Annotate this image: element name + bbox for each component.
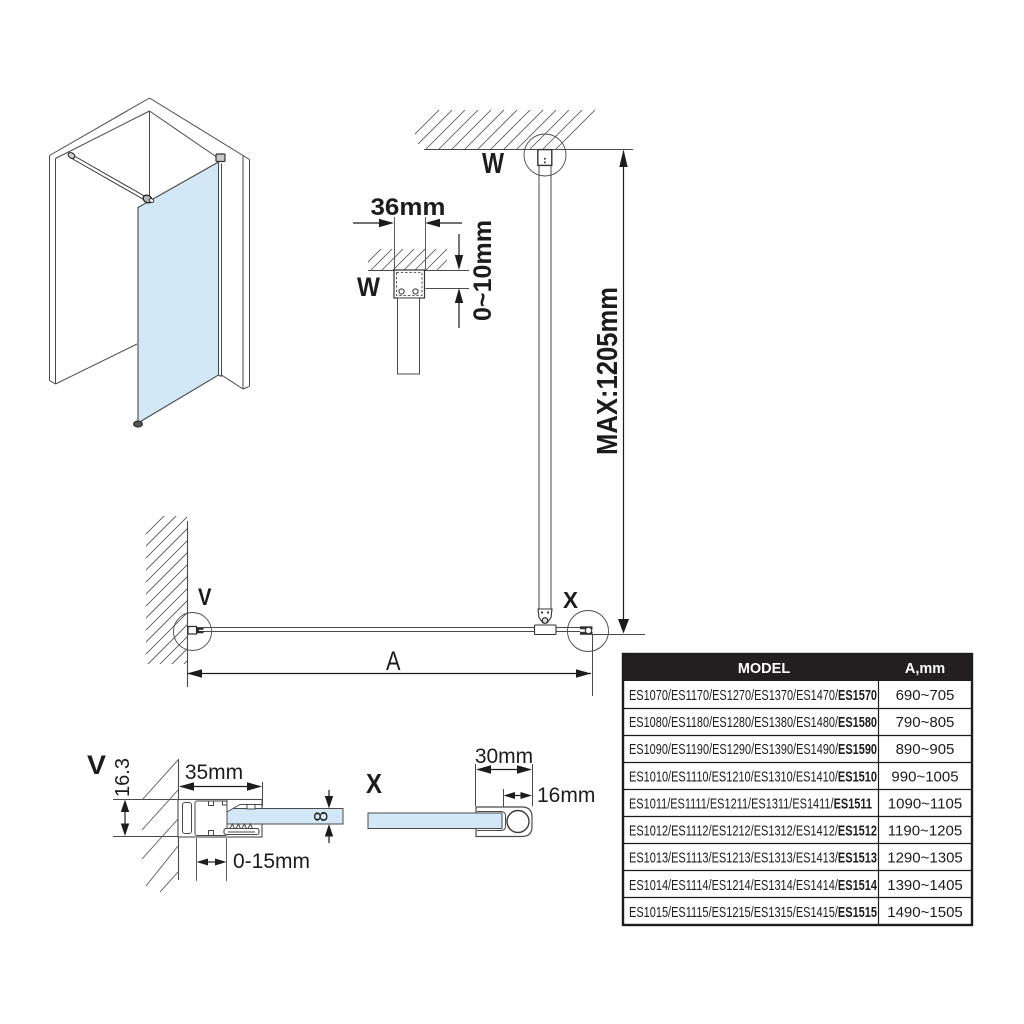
svg-text:V: V <box>198 584 212 611</box>
svg-text:1290~1305: 1290~1305 <box>887 850 963 867</box>
svg-text:1190~1205: 1190~1205 <box>888 823 962 840</box>
svg-text:790~805: 790~805 <box>896 714 955 731</box>
svg-text:ES1015/ES1115/ES1215/ES1315/ES: ES1015/ES1115/ES1215/ES1315/ES1415/ES151… <box>629 904 877 921</box>
svg-text:ES1014/ES1114/ES1214/ES1314/ES: ES1014/ES1114/ES1214/ES1314/ES1414/ES151… <box>629 877 877 894</box>
svg-text:1390~1405: 1390~1405 <box>887 877 963 894</box>
svg-text:ES1010/ES1110/ES1210/ES1310/ES: ES1010/ES1110/ES1210/ES1310/ES1410/ES151… <box>629 768 877 785</box>
svg-text:ES1013/ES1113/ES1213/ES1313/ES: ES1013/ES1113/ES1213/ES1313/ES1413/ES151… <box>629 850 877 867</box>
svg-text:1090~1105: 1090~1105 <box>888 795 962 812</box>
svg-text:0~10mm: 0~10mm <box>469 220 497 321</box>
svg-text:0-15mm: 0-15mm <box>233 850 310 873</box>
svg-text:ES1011/ES1111/ES1211/ES1311/ES: ES1011/ES1111/ES1211/ES1311/ES1411/ES151… <box>629 795 872 812</box>
svg-text:35mm: 35mm <box>185 761 243 784</box>
svg-text:ES1090/ES1190/ES1290/ES1390/ES: ES1090/ES1190/ES1290/ES1390/ES1490/ES159… <box>629 741 877 758</box>
svg-text:MODEL: MODEL <box>738 661 791 677</box>
svg-text:30mm: 30mm <box>475 745 533 768</box>
svg-text:W: W <box>357 272 380 302</box>
svg-text:MAX:1205mm: MAX:1205mm <box>592 287 624 455</box>
svg-text:16mm: 16mm <box>537 784 595 807</box>
svg-text:890~905: 890~905 <box>896 741 955 758</box>
svg-text:36mm: 36mm <box>371 194 446 221</box>
svg-text:1490~1505: 1490~1505 <box>887 904 963 921</box>
svg-text:16.3: 16.3 <box>112 758 134 797</box>
svg-text:X: X <box>563 587 579 613</box>
svg-text:V: V <box>87 750 106 780</box>
svg-text:8: 8 <box>312 811 333 822</box>
svg-text:ES1080/ES1180/ES1280/ES1380/ES: ES1080/ES1180/ES1280/ES1380/ES1480/ES158… <box>629 714 877 731</box>
svg-text:990~1005: 990~1005 <box>891 768 958 785</box>
svg-text:X: X <box>366 768 382 799</box>
svg-text:A: A <box>386 646 401 676</box>
svg-text:ES1070/ES1170/ES1270/ES1370/ES: ES1070/ES1170/ES1270/ES1370/ES1470/ES157… <box>629 687 877 704</box>
svg-text:A,mm: A,mm <box>905 661 945 677</box>
svg-text:690~705: 690~705 <box>896 687 955 704</box>
svg-text:W: W <box>482 148 505 180</box>
svg-text:ES1012/ES1112/ES1212/ES1312/ES: ES1012/ES1112/ES1212/ES1312/ES1412/ES151… <box>629 823 877 840</box>
